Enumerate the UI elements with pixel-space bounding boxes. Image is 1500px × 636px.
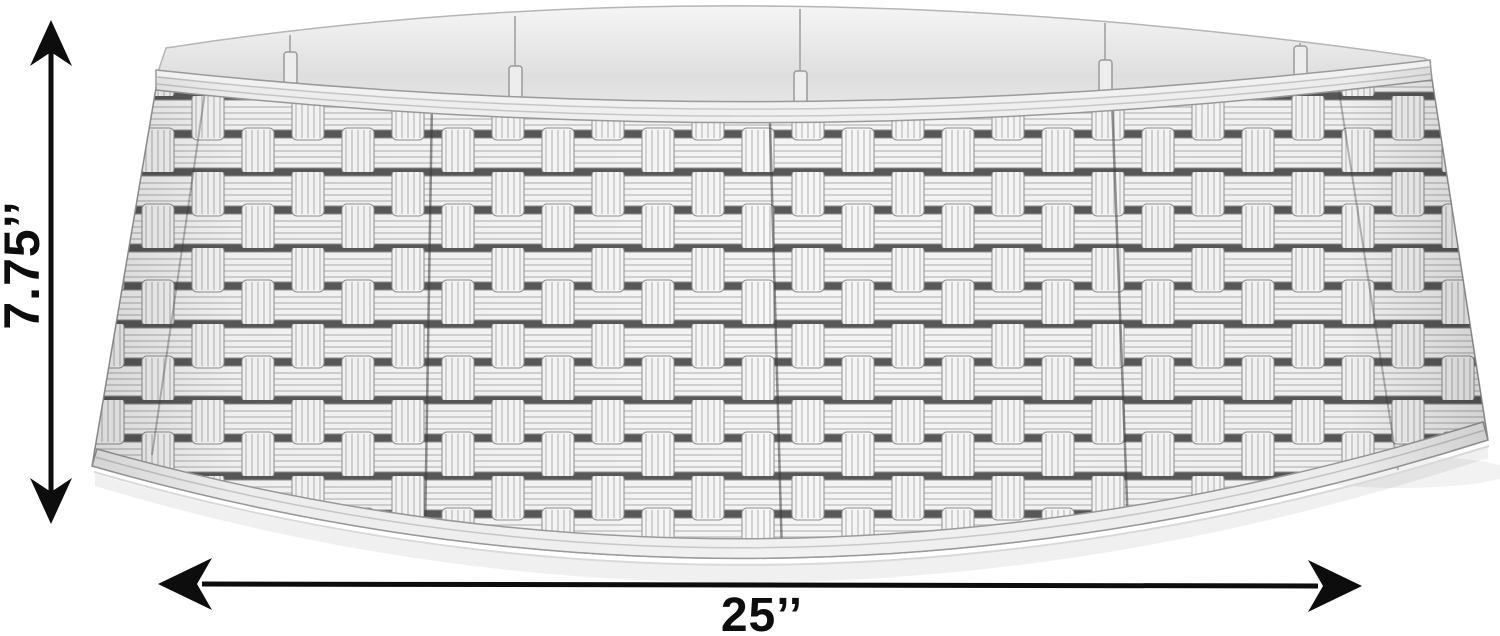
height-dimension: 7.75’’ — [0, 20, 72, 524]
side-shading — [92, 66, 1488, 558]
tree-collar-illustration — [92, 6, 1500, 583]
width-arrow-shaft — [202, 584, 1318, 586]
figure-canvas: 7.75’’ 25’’ — [0, 0, 1500, 636]
width-label: 25’’ — [721, 589, 803, 636]
product-dimension-figure: 7.75’’ 25’’ — [0, 0, 1500, 636]
height-label: 7.75’’ — [0, 200, 50, 329]
